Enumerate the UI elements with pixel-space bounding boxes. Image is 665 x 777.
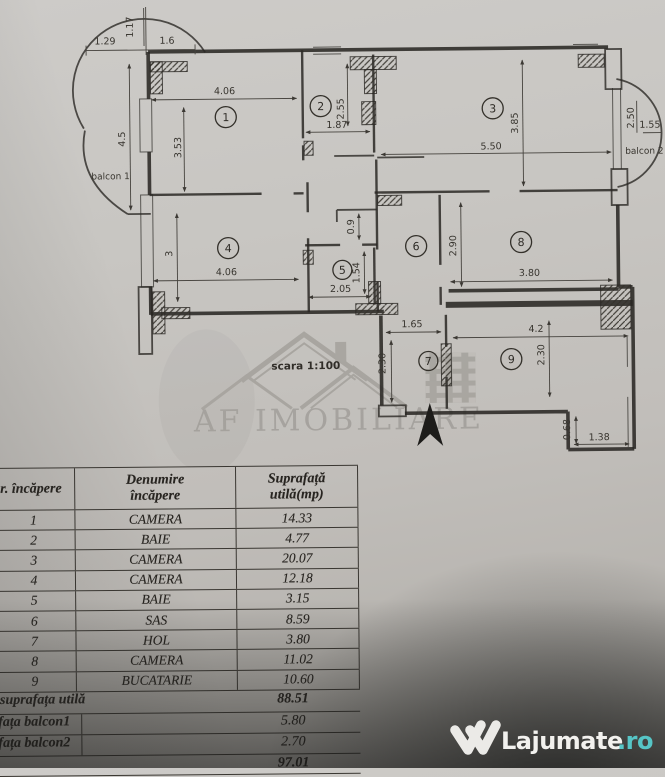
room-name: SAS — [75, 610, 236, 631]
summary-value: 97.01 — [233, 755, 355, 772]
room-area: 12.18 — [236, 568, 359, 588]
room-area: 11.02 — [237, 649, 360, 669]
table-header: r. încăpere Denumire încăpere Suprafață … — [0, 465, 358, 511]
svg-text:1: 1 — [222, 111, 229, 124]
dimension-label: 4.2 — [528, 324, 543, 335]
balcony2-label: balcon 2 — [625, 147, 664, 157]
dimension-label: 4.06 — [216, 267, 237, 278]
dimension-label: 5.50 — [480, 141, 501, 152]
summary-grand-total: 97.01 — [0, 753, 361, 776]
summary-label: fața balcon1 — [0, 714, 82, 735]
dimension-label: 3.85 — [510, 112, 521, 133]
room-number-badge: 4 — [218, 237, 239, 258]
dimension-label: 1.17 — [125, 16, 136, 37]
watermark-text: AF IMOBILIARE — [193, 401, 484, 439]
room-number: 8 — [0, 653, 76, 670]
dimension-label: 4.06 — [214, 86, 235, 97]
room-name: CAMERA — [75, 549, 236, 570]
room-number: 9 — [0, 673, 76, 690]
room-area: 10.60 — [237, 669, 360, 689]
room-area: 14.33 — [235, 508, 358, 528]
room-area: 4.77 — [236, 528, 359, 548]
room-number: 6 — [0, 613, 75, 630]
dimension-label: 2.55 — [336, 98, 347, 119]
dimension-label: 1.38 — [589, 432, 610, 443]
balcony1-label: balcon 1 — [91, 172, 130, 182]
room-name: CAMERA — [75, 569, 236, 590]
area-table-body: 1CAMERA14.332BAIE4.773CAMERA20.074CAMERA… — [0, 508, 360, 693]
room-number: 2 — [0, 532, 75, 549]
svg-text:4: 4 — [225, 242, 232, 255]
room-number-badge: 8 — [510, 231, 531, 252]
room-name: BAIE — [75, 590, 236, 611]
dimension-label: 2.30 — [536, 344, 547, 365]
room-area: 20.07 — [236, 548, 359, 568]
dimension-label: 1.65 — [401, 319, 422, 330]
table-summary: suprafața utilă 88.51 fața balcon1 5.80 … — [0, 689, 361, 776]
svg-text:8: 8 — [518, 236, 525, 249]
dimension-label: 2.90 — [448, 235, 459, 256]
summary-value: 88.51 — [232, 691, 354, 708]
dimension-label: 1.55 — [639, 120, 660, 131]
room-number-badge: 3 — [482, 98, 503, 119]
summary-label: fața balcon2 — [0, 735, 83, 756]
summary-value: 2.70 — [232, 734, 354, 751]
dimension-label: 2.30 — [377, 353, 388, 374]
floorplan-photo: { "plan": { "scale_label": "scara 1:100"… — [0, 0, 665, 768]
room-number: 4 — [0, 572, 75, 589]
room-number: 1 — [0, 512, 75, 529]
scale-label: scara 1:100 — [271, 360, 340, 373]
room-name: BAIE — [75, 529, 236, 550]
room-name: CAMERA — [76, 650, 237, 671]
dimension-label: 2.05 — [330, 284, 351, 295]
dimension-label: 3.80 — [519, 268, 540, 279]
summary-value: 5.80 — [232, 713, 354, 730]
floor-plan: AF IMOBILIARE — [0, 0, 665, 469]
svg-text:7: 7 — [425, 355, 432, 368]
room-name: BUCATARIE — [76, 670, 237, 691]
svg-text:6: 6 — [413, 240, 420, 253]
room-number: 3 — [0, 552, 75, 569]
lajumate-logo-icon — [455, 725, 496, 750]
room-area-table: r. încăpere Denumire încăpere Suprafață … — [0, 465, 361, 777]
dimension-label: 3.53 — [173, 137, 184, 158]
dimension-label: 3 — [164, 251, 175, 257]
room-name: CAMERA — [74, 509, 235, 530]
dimension-label: 1.54 — [351, 262, 362, 283]
room-number-badge: 9 — [501, 349, 522, 370]
header-room-area: Suprafață utilă(mp) — [235, 466, 358, 508]
room-name: HOL — [75, 630, 236, 651]
dimension-label: 1.29 — [94, 36, 115, 47]
room-area: 8.59 — [236, 609, 359, 629]
lajumate-brand-text: Lajumate — [501, 727, 623, 755]
dimension-label: 4.5 — [117, 132, 128, 147]
header-room-name: Denumire încăpere — [74, 467, 235, 509]
room-number: 5 — [0, 593, 75, 610]
svg-text:5: 5 — [339, 264, 346, 277]
plan-light-walls — [334, 155, 425, 222]
lajumate-tld-text: .ro — [617, 727, 653, 755]
dimension-label: 0.68 — [562, 419, 573, 440]
lajumate-watermark: Lajumate .ro — [443, 712, 663, 762]
summary-label: suprafața utilă — [0, 692, 85, 709]
header-room-number: r. încăpere — [0, 468, 74, 510]
room-number-badge: 1 — [215, 107, 236, 128]
room-number-badge: 5 — [333, 260, 352, 279]
svg-text:9: 9 — [508, 353, 515, 366]
dimension-label: 2.50 — [626, 107, 637, 128]
room-area: 3.15 — [236, 589, 359, 609]
svg-text:3: 3 — [489, 102, 496, 115]
room-number-badge: 6 — [406, 236, 427, 257]
svg-text:2: 2 — [317, 100, 324, 113]
dimension-label: 0.9 — [346, 219, 357, 234]
room-area: 3.80 — [236, 629, 359, 649]
af-imobiliare-watermark: AF IMOBILIARE — [158, 326, 484, 469]
room-number-badge: 2 — [310, 96, 331, 117]
summary-total-util: suprafața utilă 88.51 — [0, 689, 360, 714]
room-number: 7 — [0, 633, 76, 650]
dimension-label: 1.87 — [326, 120, 347, 131]
dimension-label: 1.6 — [159, 36, 174, 47]
